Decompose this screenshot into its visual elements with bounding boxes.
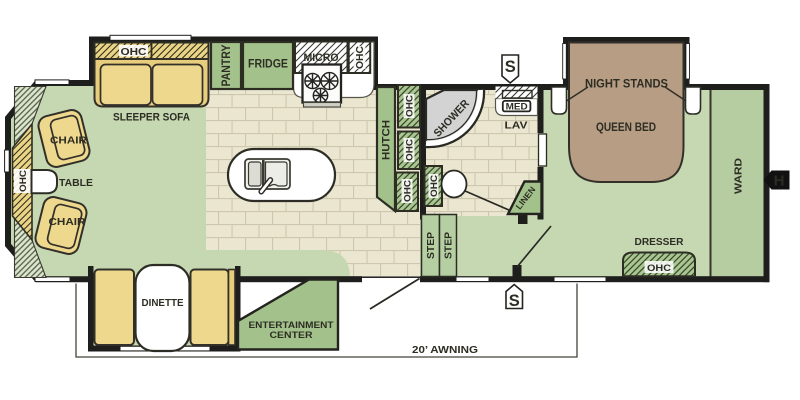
- svg-text:OHC: OHC: [405, 95, 416, 117]
- svg-text:WARD: WARD: [733, 158, 745, 194]
- svg-text:SLEEPER SOFA: SLEEPER SOFA: [113, 112, 190, 124]
- svg-text:CENTER: CENTER: [270, 330, 314, 340]
- svg-text:FRIDGE: FRIDGE: [248, 59, 288, 71]
- svg-text:PANTRY: PANTRY: [221, 44, 233, 86]
- svg-text:H: H: [774, 173, 785, 190]
- svg-text:LAV: LAV: [505, 119, 528, 131]
- svg-text:TABLE: TABLE: [59, 178, 93, 189]
- svg-text:OHC: OHC: [403, 180, 414, 202]
- svg-text:20’ AWNING: 20’ AWNING: [412, 344, 478, 356]
- svg-text:MICRO: MICRO: [304, 52, 339, 64]
- svg-text:HUTCH: HUTCH: [381, 120, 393, 160]
- svg-text:OHC: OHC: [18, 170, 29, 192]
- svg-text:ENTERTAINMENT: ENTERTAINMENT: [249, 320, 335, 330]
- svg-text:CHAIR: CHAIR: [49, 217, 87, 228]
- svg-text:DRESSER: DRESSER: [635, 236, 684, 248]
- svg-text:S: S: [505, 58, 516, 76]
- svg-text:STEP: STEP: [444, 232, 455, 259]
- svg-text:NIGHT STANDS: NIGHT STANDS: [585, 79, 668, 91]
- svg-text:OHC: OHC: [121, 46, 147, 58]
- svg-text:MED: MED: [506, 101, 529, 111]
- svg-text:OHC: OHC: [429, 175, 440, 197]
- svg-text:OHC: OHC: [405, 139, 416, 161]
- svg-text:DINETTE: DINETTE: [142, 298, 184, 309]
- svg-text:S: S: [509, 292, 520, 310]
- svg-text:OHC: OHC: [355, 46, 366, 69]
- svg-text:OHC: OHC: [647, 263, 671, 274]
- svg-text:QUEEN BED: QUEEN BED: [596, 122, 656, 134]
- svg-text:CHAIR: CHAIR: [50, 136, 88, 147]
- svg-text:STEP: STEP: [426, 232, 437, 259]
